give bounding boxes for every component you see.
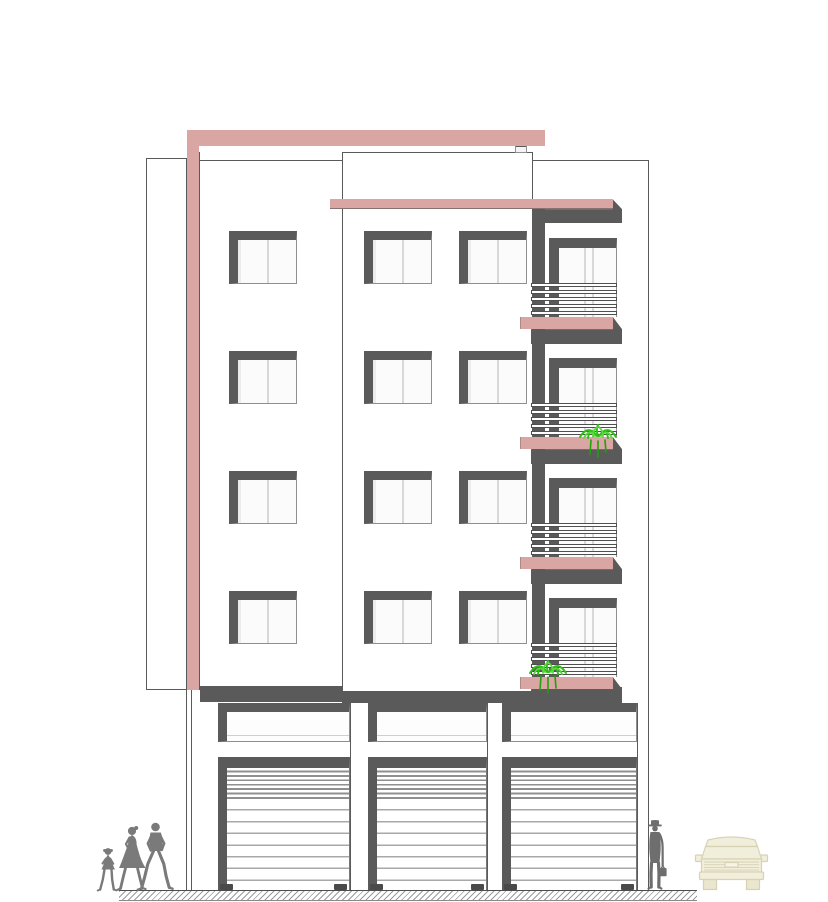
hat bbox=[651, 820, 659, 825]
man-head bbox=[151, 823, 160, 832]
shop-pier-line bbox=[487, 703, 488, 890]
shop-transom-window bbox=[502, 703, 637, 742]
shutter-slats-rolled bbox=[377, 768, 486, 799]
roller-shutter bbox=[502, 757, 637, 890]
shop-transom-window bbox=[218, 703, 350, 742]
ground-wall-edge-outer bbox=[186, 690, 187, 890]
shop-pier-line bbox=[637, 703, 638, 890]
shop-pier-line bbox=[350, 703, 351, 890]
roller-shutter bbox=[218, 757, 350, 890]
briefcase bbox=[659, 868, 667, 876]
car-windshield bbox=[702, 847, 762, 860]
shutter-slats bbox=[377, 799, 486, 890]
man-with-briefcase-silhouette bbox=[640, 819, 670, 892]
shutter-slats bbox=[511, 799, 636, 890]
car-plate bbox=[725, 863, 738, 868]
car-wheel-right bbox=[747, 880, 760, 890]
ground-line-hatch bbox=[119, 890, 697, 901]
elevation-canvas bbox=[0, 0, 828, 902]
car-roof bbox=[706, 837, 758, 847]
shutter-slats-rolled bbox=[227, 768, 349, 799]
ground-floor-layer bbox=[0, 0, 828, 902]
ground-wall-edge-inner bbox=[191, 690, 192, 890]
car-wheel-left bbox=[704, 880, 717, 890]
shop-transom-window bbox=[368, 703, 487, 742]
roller-shutter bbox=[368, 757, 487, 890]
car-bumper bbox=[700, 872, 764, 880]
family-silhouette bbox=[95, 818, 175, 894]
shutter-slats bbox=[227, 799, 349, 890]
car-front-outline bbox=[694, 831, 769, 891]
shutter-slats-rolled bbox=[511, 768, 636, 799]
